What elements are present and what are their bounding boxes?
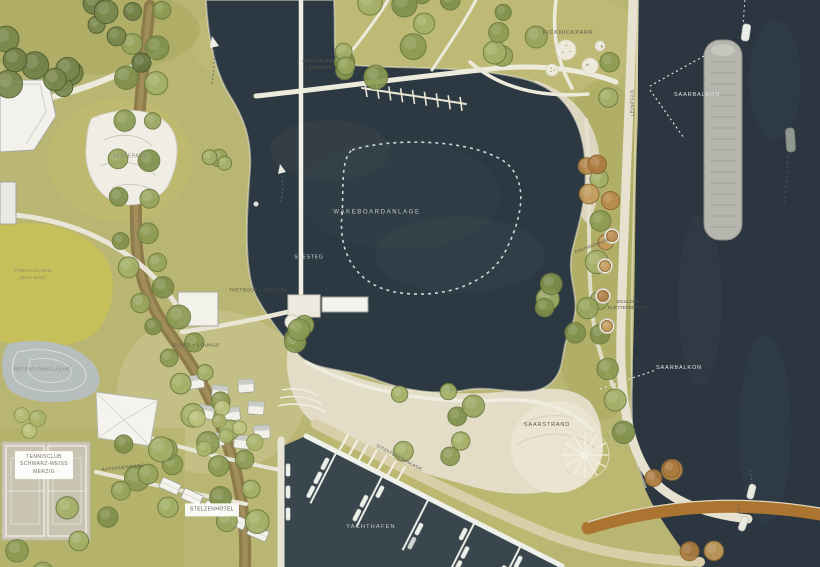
seesteg-platform [288, 295, 320, 317]
tennis-courts [2, 442, 90, 540]
saar-pontoon [704, 40, 742, 240]
site-plan-map: PICKNICKPARKANSCHLUSS LEINPFADSAARBALKON… [0, 0, 820, 567]
beach-umbrella [561, 431, 609, 479]
site-plan-svg [0, 0, 820, 567]
tretboot-station [322, 297, 368, 312]
